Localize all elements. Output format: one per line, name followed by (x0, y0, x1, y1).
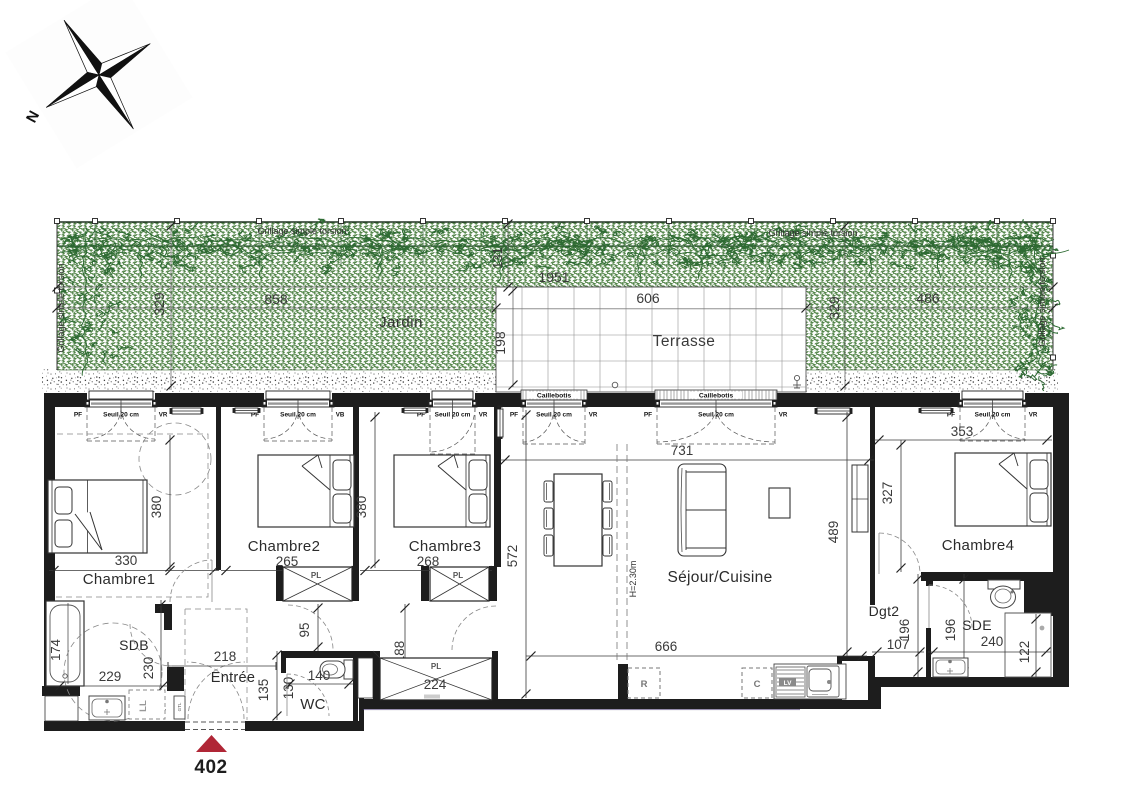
svg-text:VR: VR (589, 412, 598, 419)
svg-text:218: 218 (214, 649, 237, 664)
svg-text:Seuil 20 cm: Seuil 20 cm (698, 412, 734, 419)
svg-text:1951: 1951 (538, 269, 569, 285)
svg-text:Dgt2: Dgt2 (869, 603, 900, 619)
svg-text:196: 196 (897, 619, 912, 642)
svg-text:731: 731 (671, 443, 694, 458)
svg-text:122: 122 (1017, 641, 1032, 664)
svg-text:Seuil 20 cm: Seuil 20 cm (536, 412, 572, 419)
svg-text:LV: LV (784, 680, 792, 687)
svg-text:489: 489 (826, 521, 841, 544)
svg-text:PL: PL (311, 571, 321, 580)
svg-text:Chambre4: Chambre4 (942, 537, 1014, 554)
svg-text:380: 380 (149, 496, 164, 519)
svg-text:230: 230 (141, 657, 156, 680)
svg-text:PF: PF (74, 412, 82, 419)
svg-text:858: 858 (264, 291, 288, 307)
svg-text:329: 329 (826, 296, 842, 320)
svg-text:SDE: SDE (962, 617, 992, 633)
svg-text:PL: PL (453, 571, 463, 580)
svg-text:WC: WC (300, 696, 326, 713)
svg-text:666: 666 (655, 639, 678, 654)
svg-text:Caillebotis: Caillebotis (699, 392, 734, 399)
svg-text:Jardin: Jardin (379, 314, 423, 331)
svg-text:SDB: SDB (119, 637, 149, 653)
svg-text:174: 174 (48, 639, 63, 661)
svg-text:330: 330 (115, 553, 138, 568)
svg-text:PF: PF (644, 412, 652, 419)
svg-text:329: 329 (151, 292, 167, 316)
svg-text:GTL: GTL (177, 702, 182, 711)
svg-text:C: C (754, 679, 761, 690)
svg-text:Terrasse: Terrasse (653, 333, 716, 350)
svg-text:PL: PL (431, 662, 441, 671)
svg-text:353: 353 (951, 424, 974, 439)
svg-text:380: 380 (354, 496, 369, 519)
svg-text:572: 572 (505, 545, 520, 568)
svg-text:Grillage simple torsion: Grillage simple torsion (257, 226, 346, 236)
svg-text:135: 135 (256, 679, 271, 702)
svg-text:Seuil 20 cm: Seuil 20 cm (280, 412, 316, 419)
svg-text:Grillage simple torsion: Grillage simple torsion (1037, 257, 1047, 346)
svg-text:VR: VR (779, 412, 788, 419)
svg-text:140: 140 (308, 668, 331, 683)
svg-text:Seuil 20 cm: Seuil 20 cm (435, 412, 471, 419)
svg-text:402: 402 (194, 757, 227, 778)
svg-text:PF: PF (510, 412, 518, 419)
svg-text:240: 240 (981, 634, 1004, 649)
svg-text:VB: VB (336, 412, 345, 419)
svg-text:Grillage simple torsion: Grillage simple torsion (768, 228, 857, 238)
svg-text:Caillebotis: Caillebotis (537, 392, 572, 399)
svg-text:Chambre2: Chambre2 (248, 538, 320, 555)
svg-text:LL: LL (138, 700, 149, 712)
svg-text:224: 224 (424, 677, 447, 692)
svg-text:131: 131 (490, 247, 505, 269)
svg-text:606: 606 (636, 290, 660, 306)
svg-text:VR: VR (479, 412, 488, 419)
svg-text:229: 229 (99, 669, 122, 684)
svg-text:Entrée: Entrée (211, 670, 256, 686)
svg-text:VR: VR (159, 412, 168, 419)
svg-text:198: 198 (492, 331, 508, 355)
svg-text:H=2.30m: H=2.30m (628, 561, 638, 598)
svg-text:327: 327 (880, 482, 895, 505)
svg-text:196: 196 (943, 619, 958, 642)
svg-text:Seuil 20 cm: Seuil 20 cm (975, 412, 1011, 419)
svg-text:486: 486 (916, 290, 940, 306)
svg-text:Séjour/Cuisine: Séjour/Cuisine (667, 569, 772, 586)
svg-text:Chambre3: Chambre3 (409, 538, 481, 555)
svg-text:VR: VR (1029, 412, 1038, 419)
svg-text:95: 95 (297, 622, 312, 637)
svg-text:R: R (641, 679, 648, 690)
svg-text:Seuil 20 cm: Seuil 20 cm (103, 412, 139, 419)
svg-text:Chambre1: Chambre1 (83, 571, 155, 588)
